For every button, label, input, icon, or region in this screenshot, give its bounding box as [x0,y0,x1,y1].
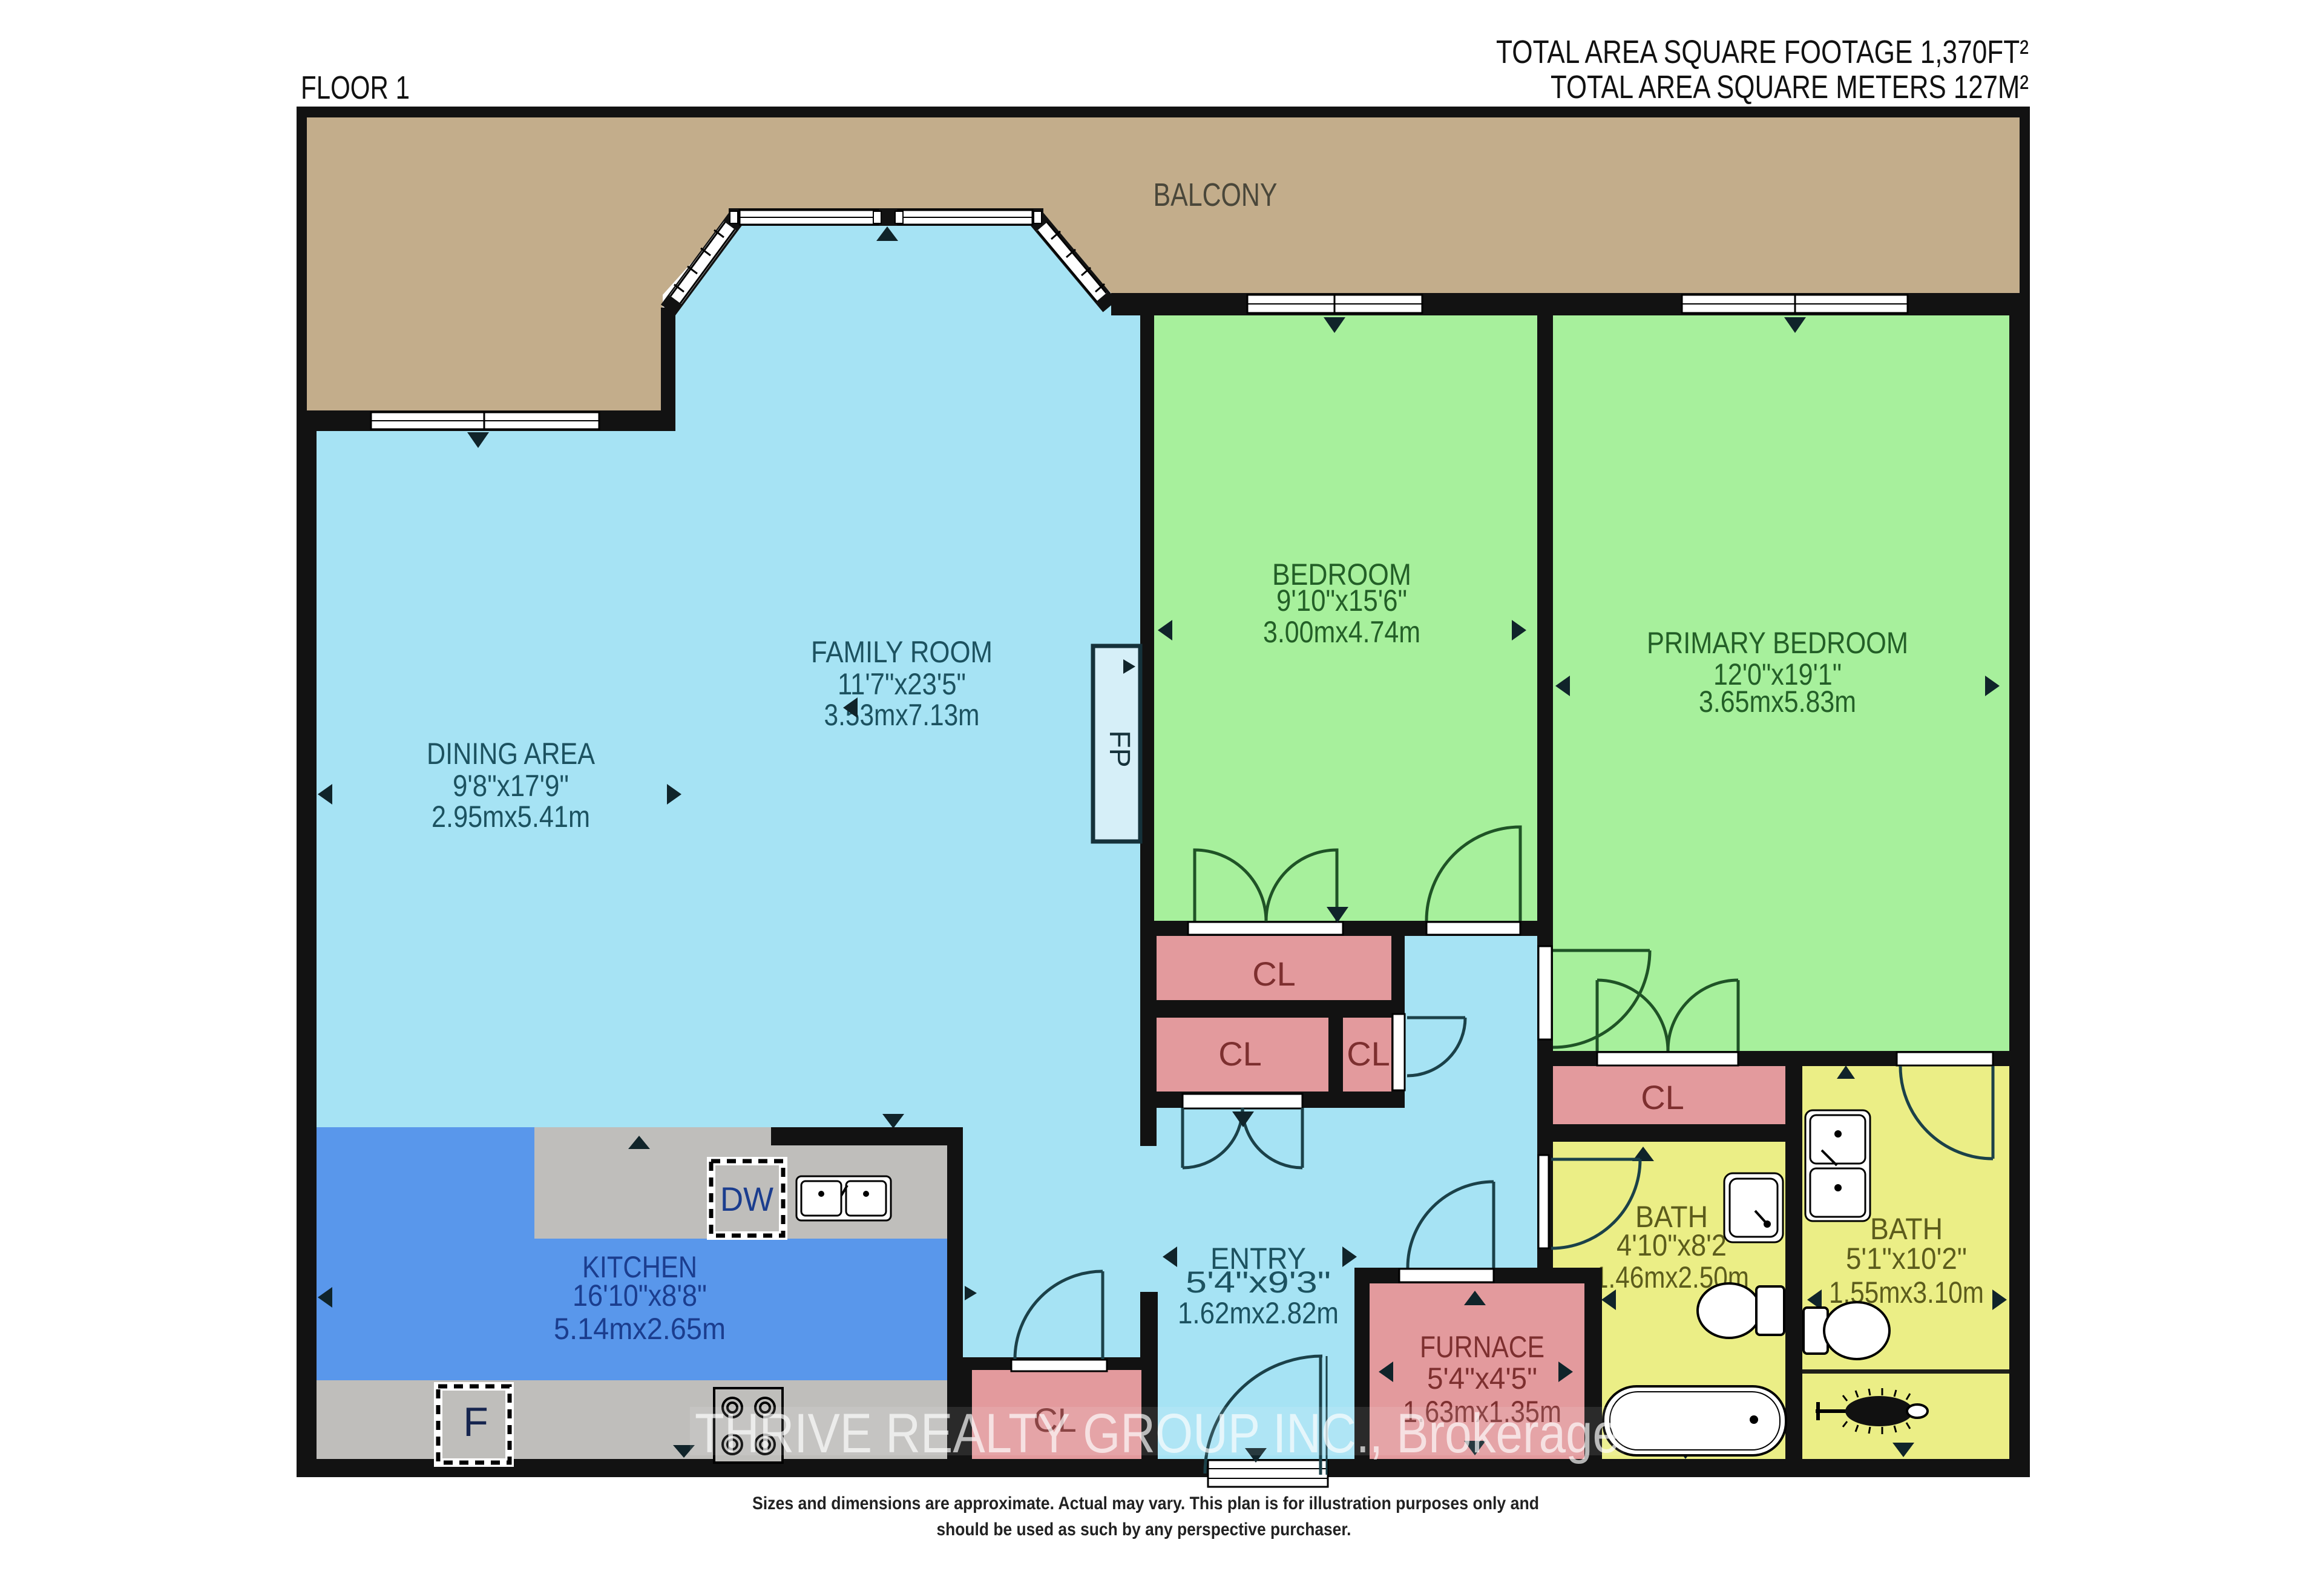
svg-text:CL: CL [1252,955,1296,993]
svg-text:5.14mx2.65m: 5.14mx2.65m [554,1312,726,1346]
svg-text:BATH: BATH [1870,1212,1943,1246]
svg-text:FLOOR 1: FLOOR 1 [301,70,410,106]
svg-text:2.95mx5.41m: 2.95mx5.41m [432,800,590,834]
svg-text:11'7"x23'5": 11'7"x23'5" [838,667,966,701]
svg-text:BALCONY: BALCONY [1154,177,1278,213]
svg-text:4'10"x8'2: 4'10"x8'2 [1617,1228,1727,1262]
svg-text:16'10"x8'8": 16'10"x8'8" [573,1279,707,1312]
svg-text:should be used as such by any: should be used as such by any perspectiv… [937,1520,1351,1539]
svg-text:1.62mx2.82m: 1.62mx2.82m [1178,1296,1339,1330]
svg-text:TOTAL AREA SQUARE FOOTAGE 1,37: TOTAL AREA SQUARE FOOTAGE 1,370FT² [1496,34,2029,70]
svg-text:TOTAL AREA SQUARE METERS 127M²: TOTAL AREA SQUARE METERS 127M² [1551,69,2029,105]
svg-text:3.53mx7.13m: 3.53mx7.13m [824,698,980,732]
svg-text:F: F [463,1399,488,1445]
svg-text:FURNACE: FURNACE [1420,1330,1544,1364]
svg-text:DW: DW [720,1180,773,1218]
svg-text:3.00mx4.74m: 3.00mx4.74m [1263,615,1420,649]
svg-text:DINING AREA: DINING AREA [427,737,596,771]
svg-text:CL: CL [1218,1035,1262,1073]
svg-text:CL: CL [1641,1078,1684,1116]
svg-text:Sizes and dimensions are appro: Sizes and dimensions are approximate. Ac… [752,1493,1539,1513]
svg-text:FAMILY ROOM: FAMILY ROOM [811,635,993,669]
svg-text:5'4"x4'5": 5'4"x4'5" [1427,1362,1537,1395]
svg-text:9'10"x15'6": 9'10"x15'6" [1276,584,1407,617]
svg-text:PRIMARY BEDROOM: PRIMARY BEDROOM [1647,626,1908,660]
svg-text:9'8"x17'9": 9'8"x17'9" [453,769,569,803]
svg-text:FP: FP [1103,730,1135,767]
svg-text:3.65mx5.83m: 3.65mx5.83m [1699,685,1856,719]
svg-text:CL: CL [1347,1035,1390,1073]
svg-text:5'4"x9'3": 5'4"x9'3" [1186,1265,1331,1299]
svg-text:THRIVE REALTY GROUP INC., Brok: THRIVE REALTY GROUP INC., Brokerage [695,1403,1620,1464]
svg-text:5'1"x10'2": 5'1"x10'2" [1846,1242,1967,1276]
